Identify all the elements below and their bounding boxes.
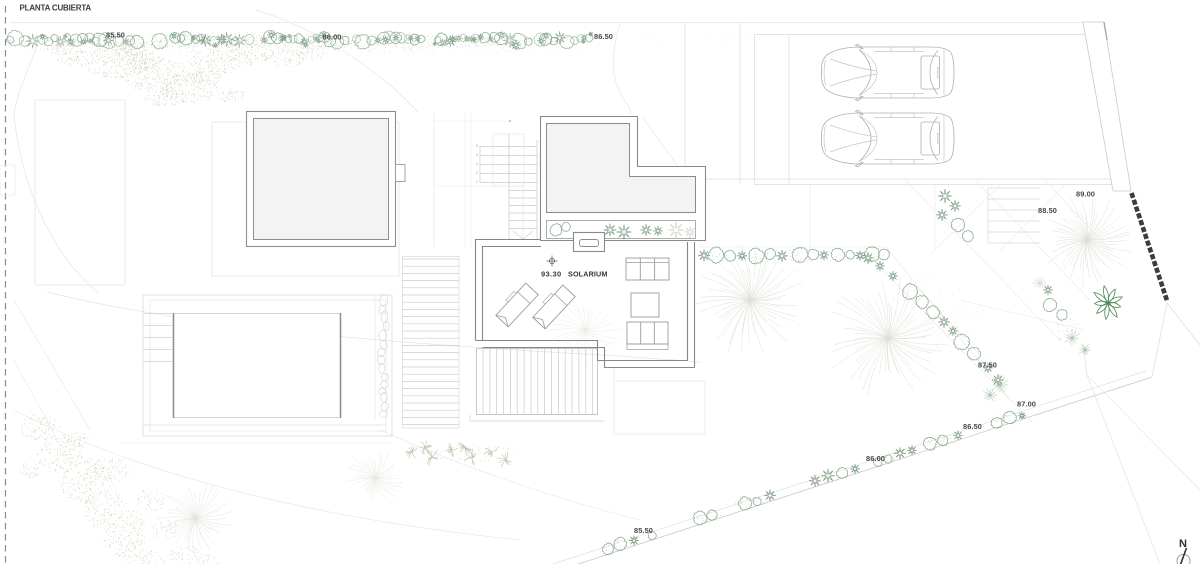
svg-text:85.50: 85.50 xyxy=(634,526,653,535)
svg-text:87.50: 87.50 xyxy=(978,361,997,370)
svg-text:2: 2 xyxy=(476,171,478,175)
svg-text:SOLARIUM: SOLARIUM xyxy=(568,270,608,279)
svg-text:1: 1 xyxy=(476,180,478,184)
svg-text:85.50: 85.50 xyxy=(106,31,125,40)
svg-text:93.30: 93.30 xyxy=(541,270,562,279)
svg-text:88.50: 88.50 xyxy=(1038,206,1057,215)
svg-text:87.00: 87.00 xyxy=(1017,400,1036,409)
svg-text:86.50: 86.50 xyxy=(594,32,613,41)
svg-text:86.00: 86.00 xyxy=(323,33,342,42)
svg-text:5: 5 xyxy=(476,144,478,148)
svg-text:86.50: 86.50 xyxy=(963,422,982,431)
svg-text:4: 4 xyxy=(476,153,478,157)
svg-text:89.00: 89.00 xyxy=(1076,190,1095,199)
svg-text:86.00: 86.00 xyxy=(866,454,885,463)
svg-text:3: 3 xyxy=(476,162,478,166)
svg-text:PLANTA CUBIERTA: PLANTA CUBIERTA xyxy=(20,4,92,13)
